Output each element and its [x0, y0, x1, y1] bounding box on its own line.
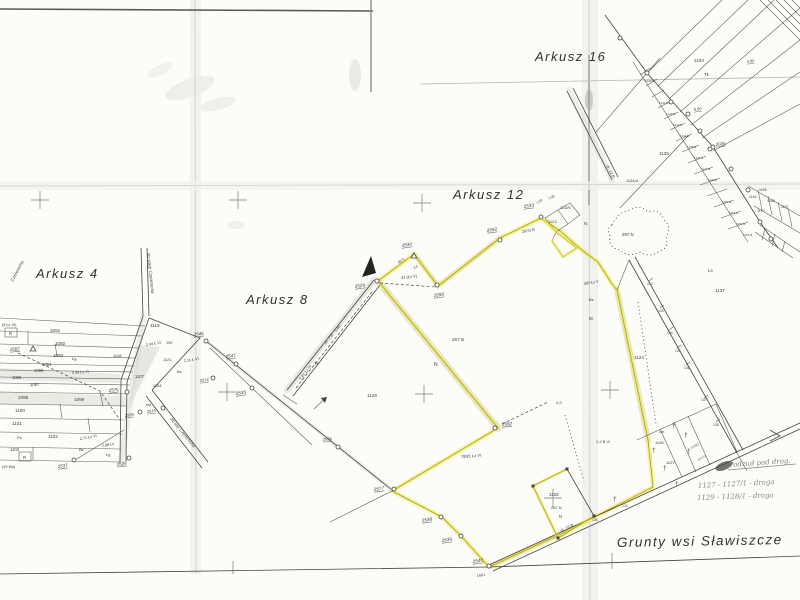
- map-label: 1163: [694, 58, 704, 63]
- survey-point-circle: [769, 237, 773, 241]
- cemetery-cross: †: [652, 447, 656, 454]
- map-label: 1164: [749, 195, 757, 199]
- map-label: 1123: [548, 219, 557, 224]
- survey-point-circle: [435, 283, 439, 287]
- survey-point-circle: [539, 215, 543, 219]
- map-label: 1139 B: [645, 79, 654, 83]
- paper-background: [0, 0, 800, 600]
- map-label: 1147 B: [701, 167, 710, 171]
- map-label: 1100: [15, 408, 25, 413]
- map-label: 1119: [150, 323, 160, 328]
- map-label: Arkusz 8: [245, 292, 309, 307]
- survey-point-circle: [211, 376, 215, 380]
- map-label: 1094: [42, 362, 52, 367]
- map-label: 1104: [153, 383, 162, 388]
- map-label: 1107: [135, 374, 145, 379]
- survey-point-circle: [392, 487, 396, 491]
- map-label: N: [559, 514, 562, 519]
- map-label: (5 Łz VI): [2, 323, 17, 327]
- map-label: 4,9: [556, 400, 562, 405]
- map-label: Grunty wsi Sławiszcze: [617, 532, 783, 550]
- parcel-corner-mark: [557, 537, 560, 540]
- survey-point-circle: [250, 386, 254, 390]
- map-label: 1101: [12, 421, 22, 426]
- map-label: 1124: [634, 355, 644, 360]
- survey-point-circle: [686, 112, 690, 116]
- map-label: 267 B: [452, 337, 464, 342]
- survey-point-circle: [234, 362, 238, 366]
- survey-point-circle: [493, 426, 497, 430]
- survey-point-circle: [498, 238, 502, 242]
- crease-blob: [585, 89, 593, 111]
- map-label: M: [589, 316, 593, 321]
- survey-point-circle: [487, 564, 491, 568]
- map-label: 1157: [781, 205, 789, 209]
- map-label: 132: [647, 282, 653, 286]
- map-label: 138: [713, 423, 719, 427]
- map-label: 1151 B: [729, 211, 738, 215]
- map-label: 136: [684, 366, 690, 370]
- map-label: 1148 B: [708, 178, 717, 182]
- map-label: Tk: [704, 72, 710, 77]
- map-label: 1118: [113, 353, 122, 358]
- map-label: 297 N: [622, 232, 634, 237]
- map-label: 1093: [53, 353, 64, 358]
- map-label: 1103: [10, 447, 20, 452]
- map-label: 106: [592, 518, 598, 522]
- map-label: 137: [701, 398, 707, 402]
- map-label: 1170: [757, 209, 765, 213]
- cemetery-cross: †: [675, 481, 679, 488]
- survey-point-circle: [439, 515, 443, 519]
- survey-point-circle: [758, 220, 762, 224]
- survey-point-circle: [204, 339, 208, 343]
- map-label: 1153 B: [743, 233, 752, 237]
- map-label: R: [23, 455, 26, 460]
- cemetery-cross: †: [684, 432, 688, 439]
- survey-point-circle: [336, 445, 340, 449]
- survey-point-circle: [746, 188, 750, 192]
- map-label: 1129: [367, 393, 377, 398]
- map-label: 2582: [501, 421, 513, 427]
- survey-point-circle: [375, 279, 379, 283]
- survey-point-circle: [729, 167, 733, 171]
- map-label: 1134/4: [626, 178, 639, 183]
- map-label: 1142 B: [666, 112, 675, 116]
- survey-point-circle: [459, 534, 463, 538]
- map-label: 1099: [74, 397, 85, 402]
- map-label: 1097: [30, 382, 40, 387]
- map-label: Bz: [589, 297, 594, 302]
- map-label: 287 N: [551, 505, 562, 510]
- map-label: 1165: [759, 188, 767, 192]
- parcel-corner-mark: [532, 485, 535, 488]
- map-label: 1128: [655, 440, 664, 445]
- map-label: Bz: [177, 369, 182, 374]
- survey-point-circle: [698, 129, 702, 133]
- map-label: 2562: [9, 346, 21, 352]
- map-label: 1098: [18, 395, 29, 400]
- survey-point-circle: [125, 390, 129, 394]
- survey-point-circle: [161, 406, 165, 410]
- map-label: Arkusz 12: [452, 187, 524, 202]
- map-label: Łg: [106, 452, 110, 457]
- cemetery-cross: †: [663, 465, 667, 472]
- map-label: 1137: [715, 288, 725, 293]
- map-label: 142: [622, 504, 628, 508]
- map-label: 1141 B: [659, 101, 668, 105]
- map-label: (39 Ws): [2, 465, 16, 469]
- map-label: 1150 B: [722, 200, 731, 204]
- cemetery-cross: †: [613, 496, 617, 503]
- survey-point-circle: [669, 100, 673, 104]
- map-canvas: ††††††† Arkusz 4Arkusz 8Arkusz 12Arkusz …: [0, 0, 800, 600]
- map-label: 133: [658, 309, 664, 313]
- map-label: Bz: [79, 447, 84, 452]
- map-label: 1091: [50, 328, 61, 333]
- map-label: 1152 B: [736, 222, 745, 226]
- map-label: 1102: [48, 434, 58, 439]
- map-label: 1096: [12, 375, 22, 380]
- map-label: N: [434, 362, 438, 368]
- map-label: 190: [166, 341, 172, 345]
- parcel-corner-mark: [566, 468, 569, 471]
- map-label: 1125: [549, 492, 559, 497]
- survey-point-circle: [645, 71, 649, 75]
- map-label: cm: [659, 429, 665, 434]
- map-label: 1121: [163, 357, 172, 362]
- survey-point-circle: [618, 36, 622, 40]
- map-label: 1168: [767, 199, 775, 203]
- map-label: Arkusz 4: [35, 266, 99, 281]
- map-label: 1143 B: [673, 123, 682, 127]
- map-label: mp: [146, 403, 151, 407]
- map-label: R: [9, 331, 12, 336]
- map-label: 1092: [55, 341, 66, 346]
- map-label: Ps: [17, 435, 22, 440]
- survey-point-circle: [127, 456, 131, 460]
- map-label: N: [584, 221, 587, 226]
- survey-point-circle: [72, 458, 76, 462]
- map-label: Ls: [708, 268, 713, 273]
- map-label: 1127: [666, 460, 675, 465]
- cemetery-cross: †: [672, 423, 676, 430]
- map-label: Łg: [72, 356, 76, 361]
- map-label: 1144 B: [680, 134, 689, 138]
- map-label: 135: [675, 349, 681, 353]
- map-label: 1145 B: [687, 145, 696, 149]
- cadastral-map-scan: ††††††† Arkusz 4Arkusz 8Arkusz 12Arkusz …: [0, 0, 800, 600]
- map-label: 1146 B: [694, 156, 703, 160]
- survey-point-circle: [711, 145, 715, 149]
- survey-point-circle: [138, 410, 142, 414]
- map-label: 1135: [659, 151, 669, 156]
- map-label: 2,2 B VI: [596, 439, 610, 444]
- map-label: 134: [667, 331, 673, 335]
- map-label: 1095: [34, 368, 44, 373]
- map-label: Arkusz 16: [534, 49, 606, 64]
- map-label: 1132/5: [560, 206, 570, 210]
